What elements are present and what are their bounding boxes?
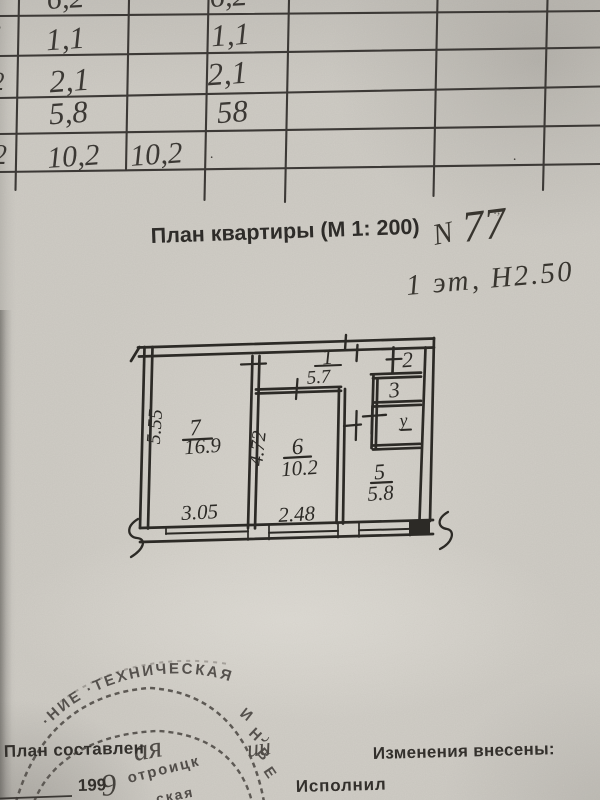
svg-text:.: . [513, 149, 517, 164]
svg-text:77: 77 [459, 198, 511, 252]
svg-text:5.7: 5.7 [306, 366, 333, 389]
svg-text:Исполнил: Исполнил [296, 775, 387, 796]
svg-text:16.9: 16.9 [183, 433, 222, 460]
svg-text:1,1: 1,1 [210, 16, 251, 54]
svg-text:1,1: 1,1 [45, 20, 86, 58]
svg-text:5.55: 5.55 [143, 408, 167, 444]
svg-text:4.72: 4.72 [245, 430, 271, 467]
svg-text:2: 2 [0, 67, 5, 96]
svg-text:3.05: 3.05 [180, 499, 219, 525]
svg-text:2.48: 2.48 [278, 501, 316, 527]
svg-text:58: 58 [216, 93, 250, 130]
svg-text:План составлен: План составлен [4, 738, 145, 761]
svg-text:-: - [0, 11, 1, 40]
svg-text:2: 2 [401, 347, 414, 373]
svg-text:ий: ий [245, 734, 272, 763]
svg-text:10,2: 10,2 [129, 136, 184, 173]
svg-text:.: . [210, 147, 214, 162]
svg-text:6,2: 6,2 [209, 0, 248, 14]
svg-text:5,8: 5,8 [48, 94, 90, 132]
svg-text:2,1: 2,1 [206, 54, 248, 93]
svg-text:6,2: 6,2 [46, 0, 85, 16]
svg-text:5.8: 5.8 [367, 480, 395, 506]
svg-text:199: 199 [78, 775, 107, 795]
svg-text:10.2: 10.2 [280, 455, 319, 482]
svg-text:10,2: 10,2 [46, 138, 101, 175]
svg-text:2: 2 [0, 140, 7, 171]
